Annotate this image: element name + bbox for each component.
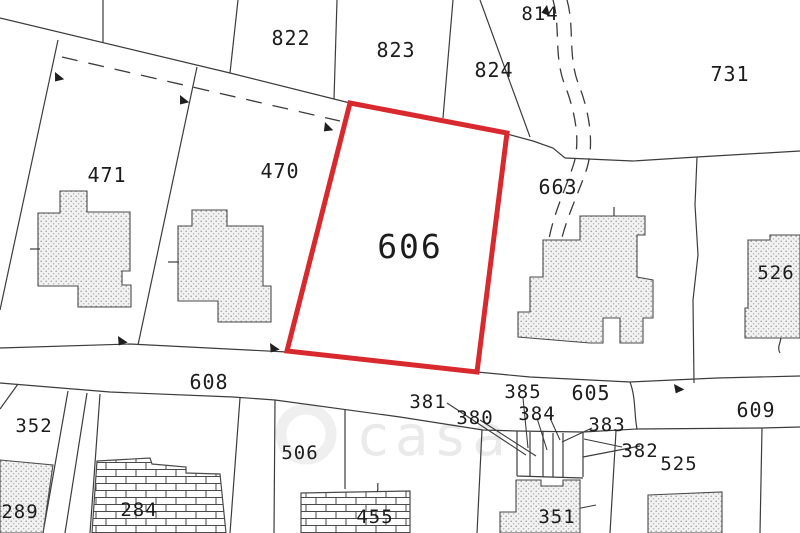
parcel-label-380: 380 — [456, 407, 493, 429]
parcel-label-824: 824 — [474, 58, 513, 82]
parcel-label-470: 470 — [260, 159, 299, 183]
building-525 — [648, 492, 722, 533]
parcel-label-351: 351 — [538, 506, 575, 528]
parcel-label-384: 384 — [518, 403, 555, 425]
parcel-label-382: 382 — [621, 440, 658, 462]
building-526 — [745, 235, 800, 338]
parcel-label-352: 352 — [15, 415, 52, 437]
road-label-605: 605 — [571, 381, 610, 405]
parcel-label-284: 284 — [120, 499, 157, 521]
parcel-label-606: 606 — [377, 227, 443, 266]
parcel-label-663: 663 — [538, 175, 577, 199]
parcel-label-731: 731 — [710, 62, 749, 86]
parcel-label-471: 471 — [87, 163, 126, 187]
parcel-label-455: 455 — [356, 506, 393, 528]
parcel-label-823: 823 — [376, 38, 415, 62]
parcel-label-525: 525 — [660, 453, 697, 475]
road-label-609: 609 — [736, 398, 775, 422]
parcel-label-381: 381 — [409, 391, 446, 413]
parcel-label-385: 385 — [504, 381, 541, 403]
parcel-label-506: 506 — [281, 442, 318, 464]
map-canvas: casa — [0, 0, 800, 533]
parcel-label-814: 814 — [521, 3, 558, 25]
parcel-label-383: 383 — [588, 414, 625, 436]
parcel-label-289: 289 — [1, 501, 38, 523]
parcel-label-822: 822 — [271, 26, 310, 50]
road-label-608: 608 — [189, 370, 228, 394]
cadastral-map: casa — [0, 0, 800, 533]
parcel-label-526: 526 — [757, 262, 794, 284]
